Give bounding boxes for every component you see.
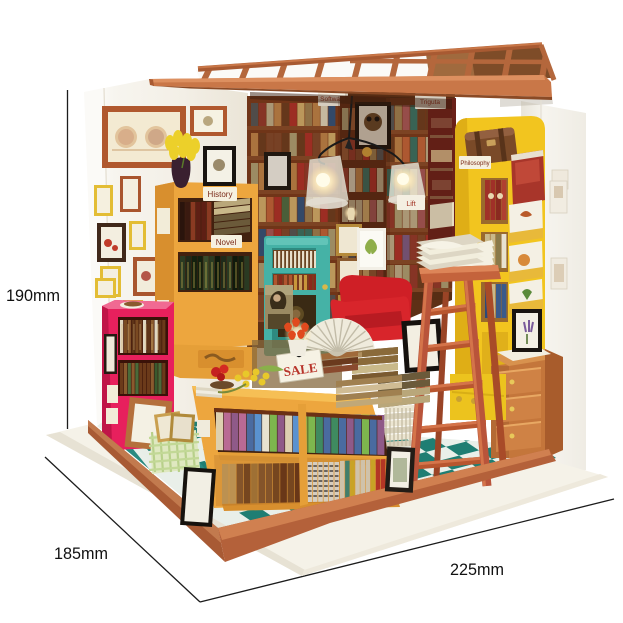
svg-text:190mm: 190mm — [6, 287, 60, 305]
svg-text:Philosophy: Philosophy — [460, 161, 489, 167]
svg-text:225mm: 225mm — [450, 561, 504, 579]
svg-text:Lift: Lift — [406, 201, 415, 208]
svg-text:185mm: 185mm — [54, 545, 108, 563]
svg-text:Novel: Novel — [216, 238, 237, 247]
svg-text:History: History — [208, 190, 233, 199]
